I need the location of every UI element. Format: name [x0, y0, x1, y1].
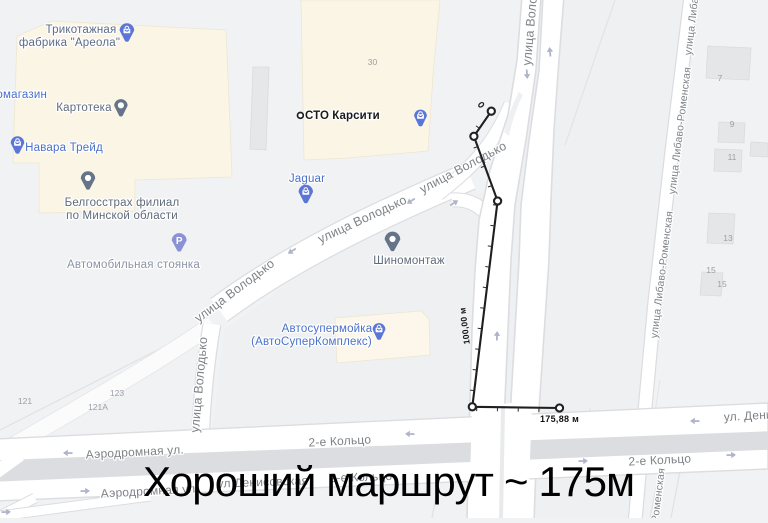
svg-text:Картотека: Картотека: [56, 102, 112, 114]
svg-text:175,88 м: 175,88 м: [540, 414, 579, 424]
svg-text:7: 7: [718, 73, 723, 83]
svg-text:Хороший маршрут ~ 175м: Хороший маршрут ~ 175м: [143, 458, 635, 505]
svg-text:Автомагазин: Автомагазин: [0, 89, 47, 101]
svg-text:121: 121: [18, 396, 32, 406]
svg-text:Белгосстрах филиал: Белгосстрах филиал: [65, 197, 180, 209]
svg-text:13: 13: [723, 233, 733, 243]
svg-text:Шиномонтаж: Шиномонтаж: [373, 255, 445, 267]
svg-text:СТО Карсити: СТО Карсити: [305, 110, 380, 122]
svg-text:11: 11: [728, 152, 737, 162]
svg-text:30: 30: [368, 57, 378, 67]
svg-text:P: P: [176, 236, 183, 247]
svg-text:Автомобильная стоянка: Автомобильная стоянка: [67, 259, 200, 271]
svg-text:Навара Трейд: Навара Трейд: [25, 142, 103, 154]
svg-text:Jaguar: Jaguar: [289, 173, 325, 185]
svg-text:фабрика "Ареола": фабрика "Ареола": [19, 37, 120, 49]
svg-text:Автосупермойка: Автосупермойка: [282, 323, 373, 335]
svg-text:123: 123: [110, 388, 124, 398]
svg-text:121А: 121А: [88, 402, 108, 412]
svg-text:9: 9: [730, 119, 735, 129]
svg-text:Трикотажная: Трикотажная: [46, 24, 117, 36]
svg-text:по Минской области: по Минской области: [66, 210, 178, 222]
svg-text:(АвтоСуперКомплекс): (АвтоСуперКомплекс): [251, 336, 372, 348]
svg-text:15: 15: [717, 279, 727, 289]
svg-text:15: 15: [706, 265, 716, 275]
